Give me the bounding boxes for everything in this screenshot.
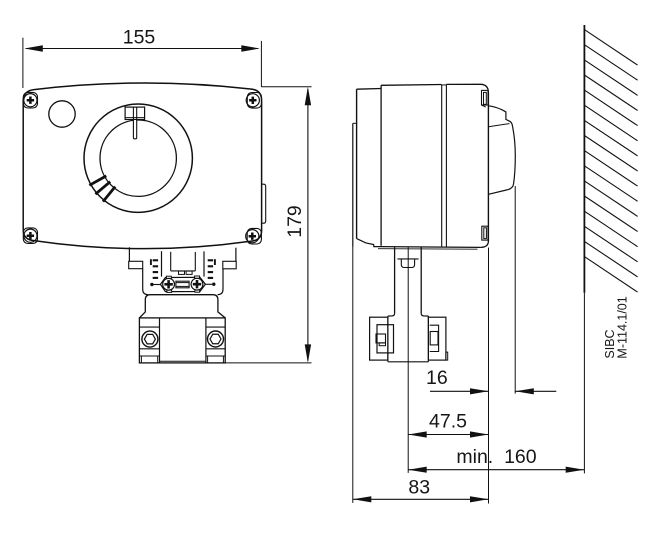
svg-text:min. 160: min. 160 — [456, 446, 536, 468]
svg-text:47.5: 47.5 — [429, 411, 467, 433]
svg-text:155: 155 — [123, 26, 156, 48]
svg-text:M-114.1/01: M-114.1/01 — [615, 296, 629, 358]
svg-text:179: 179 — [284, 205, 306, 238]
svg-text:16: 16 — [426, 367, 448, 389]
svg-text:83: 83 — [408, 477, 430, 499]
